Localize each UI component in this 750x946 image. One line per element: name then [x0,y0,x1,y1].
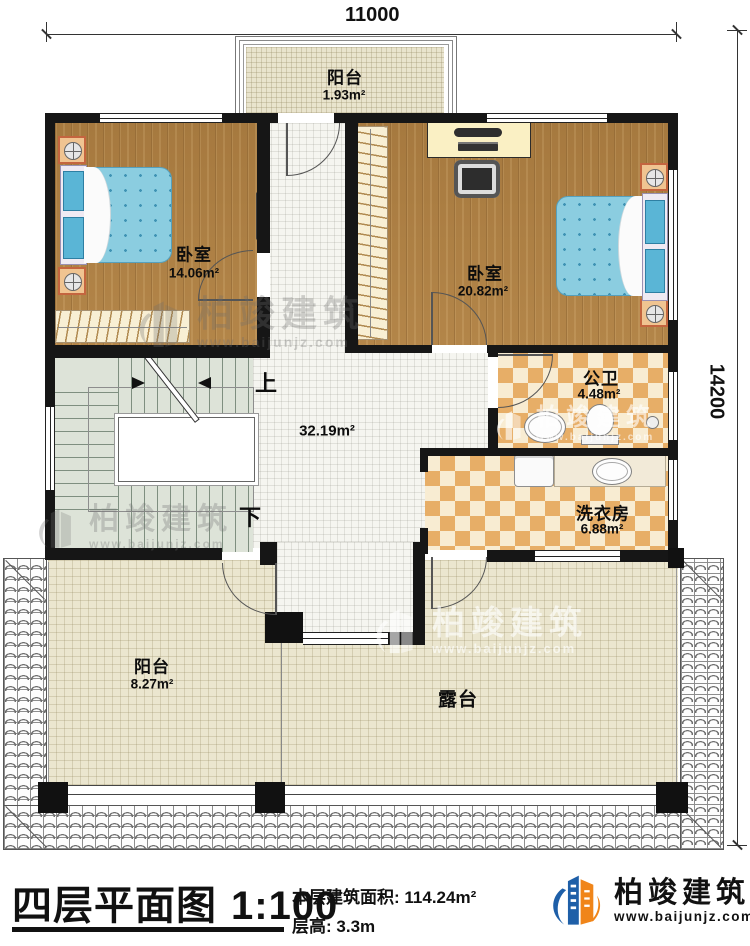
bed-pillow [645,200,665,244]
floor-height-row: 层高: 3.3m [292,913,476,942]
bed-pillow [63,171,84,211]
door-leaf [275,563,277,615]
floor-area-row: 本层建筑面积: 114.24m² [292,884,476,913]
door-opening-bathroom [488,357,498,408]
desk [427,122,531,158]
dimension-right-value: 14200 [704,364,727,420]
terrace-column [668,548,684,568]
bed-right [556,193,668,301]
door-opening-bedroomR [432,345,487,353]
terrace-railing [48,785,673,795]
balcony-edge-line [48,562,49,788]
room-area-balcony-bottom: 8.27m² [131,677,174,692]
door-opening-bedroomL [257,253,270,297]
wall-bedroomL-south [45,345,270,358]
toilet [586,404,614,436]
plan-title-text: 四层平面图 [12,873,217,931]
door-leaf [198,299,253,301]
room-area-bedroom-left: 14.06m² [169,266,219,281]
room-area-laundry: 6.88m² [581,522,624,537]
nightstand [58,267,86,295]
window-laundry-east [668,460,678,520]
door-leaf [431,292,433,345]
window-stairs-west [45,407,55,490]
keyboard-icon [458,142,498,151]
brand-logo-icon [548,872,606,930]
room-label-balcony-top: 阳台 [327,64,363,89]
nightstand [640,163,668,191]
window-bathroom-east [668,372,678,440]
wall-vestibule-west-top [260,542,277,565]
wall-vestibule-east [413,542,425,645]
floor-plan-canvas: 阳台 1.93m² 卧室 14.06m² 卧室 20.82m² 公卫 4.48m… [0,0,750,946]
room-area-bathroom: 4.48m² [578,387,621,402]
terrace-column [255,782,285,813]
stair-void [118,417,255,482]
stairs-down-label: 下 [239,500,261,532]
roof-tiles-bottom [3,805,682,850]
dimension-right-line [737,30,738,846]
bed-pillow [645,249,665,293]
dimension-top-line [46,34,677,35]
bed-blanket [618,196,645,296]
room-area-bedroom-right: 20.82m² [458,284,508,299]
window-bedroomR-east [668,170,678,320]
wall-bedroomL-east-upper [257,113,270,253]
title-underline [12,927,284,932]
terrace-column [38,782,68,813]
toilet-tank [581,435,619,445]
bathroom-sink [524,411,566,443]
door-leaf [286,123,288,176]
room-area-hall: 32.19m² [299,423,355,440]
terrace-column [656,782,688,813]
washing-machine [514,454,554,487]
door-leaf [498,354,553,356]
floor-stats: 本层建筑面积: 114.24m² 层高: 3.3m [292,884,476,942]
bed-pillow [63,217,84,259]
wall-bathroom-west [488,345,498,357]
room-label-bedroom-right: 卧室 [467,260,503,285]
room-area-balcony-top: 1.93m² [323,88,366,103]
laundry-sink [592,458,632,485]
terrace-edge-line [676,562,677,788]
stairs-up-label: 上 [255,366,277,398]
stair-arrow-right [132,377,145,389]
window-bedroomL-north [100,113,222,123]
brand-website: www.baijunjz.com [614,909,750,924]
balcony-terrace-divider [281,643,282,788]
plan-title: 四层平面图 1:100 [12,873,338,931]
window-bedroomR-north [487,113,607,123]
window-laundry-south [535,550,620,562]
door-leaf [431,557,433,609]
desk-chair [454,160,500,198]
desk-lamp-icon [454,128,502,137]
wall-bedroomR-south [345,345,678,353]
dimension-top-value: 11000 [345,4,400,27]
room-label-bedroom-left: 卧室 [176,241,212,266]
bed-left [60,165,172,265]
wall-vestibule-south-east [388,632,425,645]
wardrobe-left [55,310,190,343]
corner-column [265,612,303,643]
brand-logo: 柏竣建筑 www.baijunjz.com [548,872,750,930]
floor-drain-icon [646,416,659,429]
door-opening-balcony-top [278,113,334,123]
wall-bath-laundry-divider [420,448,668,456]
nightstand [58,136,86,164]
wall-stairs-south [45,548,222,560]
stair-arrow-left [198,377,211,389]
brand-name: 柏竣建筑 [614,878,750,910]
wall-left [45,113,55,560]
railing-window-vestibule [303,632,388,645]
room-label-balcony-bottom: 阳台 [134,653,170,678]
wall-laundry-west-top [420,448,428,472]
room-label-terrace: 露台 [438,685,478,712]
wall-bedroomR-west [345,113,358,353]
nightstand [640,299,668,327]
